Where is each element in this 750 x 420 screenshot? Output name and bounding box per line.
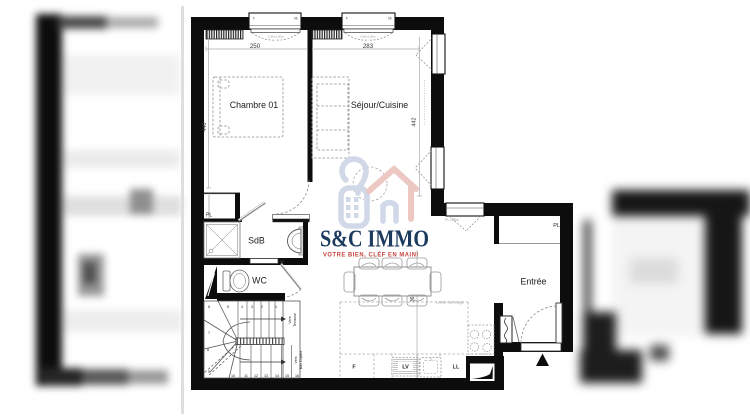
svg-text:10: 10: [231, 374, 235, 378]
svg-text:2: 2: [261, 305, 263, 309]
svg-text:3: 3: [251, 305, 253, 309]
svg-text:Bas Duplex: Bas Duplex: [299, 351, 303, 370]
svg-text:F: F: [253, 17, 255, 21]
svg-text:1: 1: [275, 305, 277, 309]
svg-text:13: 13: [264, 374, 268, 378]
svg-text:F: F: [346, 17, 348, 21]
svg-text:4: 4: [241, 305, 243, 309]
svg-text:VOTRE BIEN, CLÉF EN MAIN!: VOTRE BIEN, CLÉF EN MAIN!: [323, 251, 419, 259]
svg-text:PL: PL: [553, 223, 560, 229]
svg-text:SdB: SdB: [248, 236, 265, 246]
svg-text:Vers: Vers: [294, 356, 298, 363]
svg-text:14: 14: [275, 374, 279, 378]
svg-text:5: 5: [227, 305, 229, 309]
svg-text:PL: PL: [206, 213, 212, 219]
svg-text:0,90x1,00m: 0,90x1,00m: [268, 35, 284, 39]
svg-text:0,90x1,00m: 0,90x1,00m: [360, 35, 376, 39]
svg-text:06: 06: [294, 17, 298, 21]
svg-text:S&C IMMO: S&C IMMO: [320, 226, 429, 253]
svg-text:Entrée: Entrée: [521, 277, 547, 287]
svg-text:11: 11: [244, 374, 248, 378]
svg-text:8: 8: [207, 348, 209, 352]
svg-text:06: 06: [388, 17, 392, 21]
svg-text:WC: WC: [252, 276, 267, 286]
svg-text:PL:1,50m: PL:1,50m: [445, 218, 459, 222]
svg-text:250: 250: [250, 43, 261, 50]
svg-text:Chambre 01: Chambre 01: [230, 100, 279, 110]
svg-text:12: 12: [254, 374, 258, 378]
svg-text:442: 442: [412, 117, 418, 126]
svg-text:Séjour/Cuisine: Séjour/Cuisine: [351, 100, 408, 110]
svg-text:440: 440: [202, 122, 208, 131]
svg-text:F: F: [352, 365, 356, 371]
svg-text:Terrasse: Terrasse: [293, 313, 297, 327]
svg-text:7: 7: [208, 331, 210, 335]
svg-text:Vers: Vers: [288, 316, 292, 323]
svg-text:Limite Carrelage: Limite Carrelage: [436, 301, 464, 305]
svg-text:LL: LL: [453, 365, 460, 371]
svg-text:16: 16: [295, 374, 299, 378]
svg-text:283: 283: [363, 43, 374, 50]
svg-text:6: 6: [208, 305, 210, 309]
svg-text:9: 9: [208, 370, 210, 374]
svg-text:15: 15: [285, 374, 289, 378]
svg-text:LV: LV: [402, 365, 409, 371]
